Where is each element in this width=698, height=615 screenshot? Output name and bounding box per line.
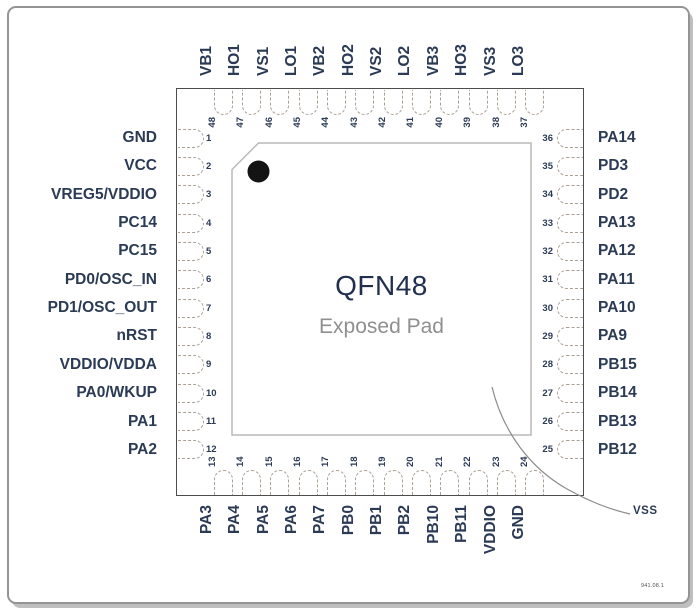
pin-label-35: PD3: [598, 156, 628, 176]
pin-40: [440, 90, 459, 115]
pin-number-9: 9: [206, 359, 224, 370]
pin-25: [557, 440, 583, 459]
pin-6: [178, 270, 204, 289]
pin-23: [497, 470, 516, 495]
pin-number-19: 19: [378, 449, 388, 467]
pin-label-20: PB2: [397, 505, 413, 577]
pin-19: [384, 470, 403, 495]
pin-37: [525, 90, 544, 115]
pin-label-4: PC14: [118, 213, 157, 233]
pin-number-15: 15: [265, 449, 275, 467]
pin-number-12: 12: [206, 444, 224, 455]
pin-number-6: 6: [206, 274, 224, 285]
pin-48: [214, 90, 233, 115]
pin-1: [178, 129, 204, 148]
pin-21: [440, 470, 459, 495]
pin-number-29: 29: [537, 331, 553, 342]
pin-number-33: 33: [537, 218, 553, 229]
pin-label-43: HO2: [341, 14, 357, 76]
pin-label-9: VDDIO/VDDA: [60, 355, 157, 375]
pin-7: [178, 299, 204, 318]
pin-45: [299, 90, 318, 115]
pin-number-32: 32: [537, 246, 553, 257]
pin-number-22: 22: [463, 449, 473, 467]
pin-number-17: 17: [321, 449, 331, 467]
pin-label-34: PD2: [598, 185, 628, 205]
pin-38: [497, 90, 516, 115]
pin-label-11: PA1: [128, 412, 157, 432]
pin-label-37: LO3: [511, 14, 527, 76]
pin-label-46: VS1: [256, 14, 272, 76]
pin-26: [557, 412, 583, 431]
pin-label-5: PC15: [118, 241, 157, 261]
vss-label: VSS: [633, 505, 658, 517]
pin-label-10: PA0/WKUP: [76, 383, 157, 403]
pin-number-30: 30: [537, 303, 553, 314]
pin-42: [384, 90, 403, 115]
pin-13: [214, 470, 233, 495]
pin-label-7: PD1/OSC_OUT: [48, 298, 157, 318]
pin-29: [557, 327, 583, 346]
pin-31: [557, 270, 583, 289]
pin-label-32: PA12: [598, 241, 636, 261]
pin-number-43: 43: [350, 117, 360, 135]
pin-label-25: PB12: [598, 440, 637, 460]
pin-20: [412, 470, 431, 495]
pin-number-28: 28: [537, 359, 553, 370]
pin-label-24: GND: [511, 505, 527, 577]
package-name-label: QFN48: [232, 270, 531, 302]
pin-36: [557, 129, 583, 148]
pin-number-20: 20: [406, 449, 416, 467]
pin-label-12: PA2: [128, 440, 157, 460]
pin-label-18: PB0: [341, 505, 357, 577]
pin-number-10: 10: [206, 388, 224, 399]
pin-number-21: 21: [435, 449, 445, 467]
pin-27: [557, 384, 583, 403]
pin-14: [242, 470, 261, 495]
pinout-figure: 48VB147HO146VS145LO144VB243HO242VS241LO2…: [0, 0, 698, 615]
pin-label-30: PA10: [598, 298, 636, 318]
pin-label-8: nRST: [117, 326, 157, 346]
pin-label-3: VREG5/VDDIO: [51, 185, 157, 205]
pin-number-1: 1: [206, 133, 224, 144]
pin-label-48: VB1: [199, 14, 215, 76]
pin-label-26: PB13: [598, 412, 637, 432]
pin-3: [178, 185, 204, 204]
pin-label-21: PB10: [426, 505, 442, 577]
pin-18: [355, 470, 374, 495]
pin-5: [178, 242, 204, 261]
pin-number-5: 5: [206, 246, 224, 257]
pin-44: [327, 90, 346, 115]
pin-number-7: 7: [206, 303, 224, 314]
pin-label-42: VS2: [369, 14, 385, 76]
pin-34: [557, 185, 583, 204]
pin-label-23: VDDIO: [483, 505, 499, 577]
pin-label-27: PB14: [598, 383, 637, 403]
pin-15: [270, 470, 289, 495]
pin-label-41: LO2: [397, 14, 413, 76]
pin-number-46: 46: [265, 117, 275, 135]
pin-label-16: PA6: [284, 505, 300, 577]
pin-number-2: 2: [206, 161, 224, 172]
pin-label-19: PB1: [369, 505, 385, 577]
pin-label-38: VS3: [483, 14, 499, 76]
pin-number-31: 31: [537, 274, 553, 285]
pin-number-41: 41: [406, 117, 416, 135]
pin-label-44: VB2: [312, 14, 328, 76]
pin-number-8: 8: [206, 331, 224, 342]
pin-number-47: 47: [236, 117, 246, 135]
figure-code: 941.08.1: [641, 583, 664, 589]
pin-label-6: PD0/OSC_IN: [65, 270, 157, 290]
pin-number-40: 40: [435, 117, 445, 135]
pin-number-39: 39: [463, 117, 473, 135]
pin-number-44: 44: [321, 117, 331, 135]
pin-number-16: 16: [293, 449, 303, 467]
pin-number-34: 34: [537, 189, 553, 200]
pin-label-17: PA7: [312, 505, 328, 577]
pin-label-45: LO1: [284, 14, 300, 76]
pin-43: [355, 90, 374, 115]
pin-label-40: VB3: [426, 14, 442, 76]
pin-10: [178, 384, 204, 403]
pin-label-13: PA3: [199, 505, 215, 577]
pin-label-39: HO3: [454, 14, 470, 76]
pin-number-45: 45: [293, 117, 303, 135]
pin-number-36: 36: [537, 133, 553, 144]
pin-number-18: 18: [350, 449, 360, 467]
pin-11: [178, 412, 204, 431]
pin-12: [178, 440, 204, 459]
exposed-pad-label: Exposed Pad: [232, 315, 531, 339]
pin-41: [412, 90, 431, 115]
pin-22: [469, 470, 488, 495]
pin-number-23: 23: [492, 449, 502, 467]
pin-number-25: 25: [537, 444, 553, 455]
pin-number-4: 4: [206, 218, 224, 229]
pin-label-36: PA14: [598, 128, 636, 148]
pin-16: [299, 470, 318, 495]
pin-47: [242, 90, 261, 115]
pin-9: [178, 355, 204, 374]
pin-number-35: 35: [537, 161, 553, 172]
pin-label-31: PA11: [598, 270, 635, 290]
pin-label-2: VCC: [124, 156, 157, 176]
pin-24: [525, 470, 544, 495]
pin-30: [557, 299, 583, 318]
pin-label-15: PA5: [256, 505, 272, 577]
pin-number-14: 14: [236, 449, 246, 467]
pin-number-37: 37: [520, 117, 530, 135]
pin-label-28: PB15: [598, 355, 637, 375]
pin-number-11: 11: [206, 416, 224, 427]
pin-label-1: GND: [123, 128, 157, 148]
pin-number-24: 24: [520, 449, 530, 467]
pin-46: [270, 90, 289, 115]
pin-number-26: 26: [537, 416, 553, 427]
pin-number-38: 38: [492, 117, 502, 135]
pin-32: [557, 242, 583, 261]
pin-33: [557, 214, 583, 233]
pin-label-22: PB11: [454, 505, 470, 577]
pin-17: [327, 470, 346, 495]
pin-number-3: 3: [206, 189, 224, 200]
pin-label-47: HO1: [227, 14, 243, 76]
pin-35: [557, 157, 583, 176]
pin-label-14: PA4: [227, 505, 243, 577]
pin-number-27: 27: [537, 388, 553, 399]
pin-4: [178, 214, 204, 233]
pin-number-42: 42: [378, 117, 388, 135]
pin-label-33: PA13: [598, 213, 636, 233]
pin-28: [557, 355, 583, 374]
pin-8: [178, 327, 204, 346]
pin-2: [178, 157, 204, 176]
pin-39: [469, 90, 488, 115]
pin-label-29: PA9: [598, 326, 627, 346]
